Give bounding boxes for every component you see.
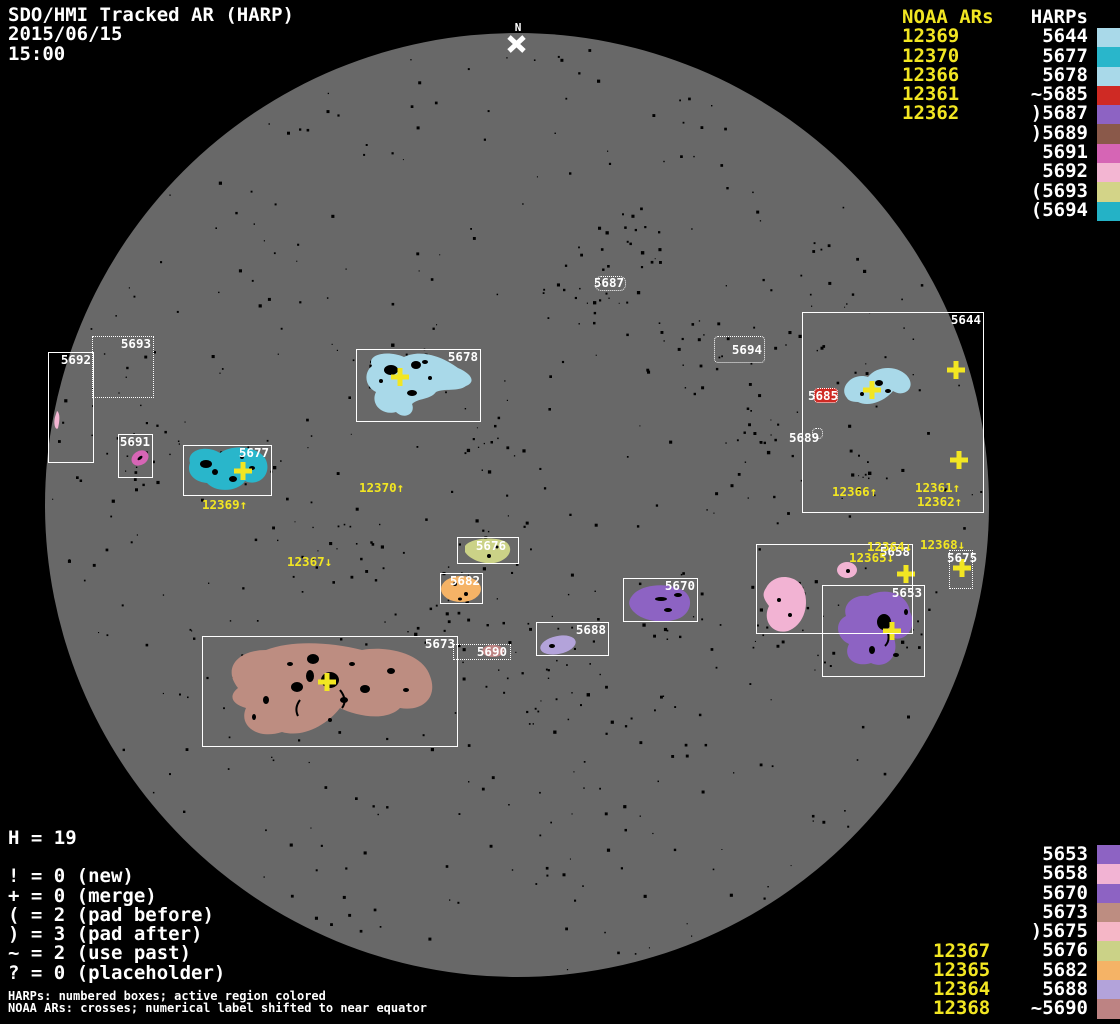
harp-box-label: 5676 [476,540,506,552]
harp-box-5688: 5688 [536,622,609,656]
harp-box-5693: 5693 [92,336,154,398]
legend-harp-item: 5677 [1000,47,1088,66]
harp-box-label: 5644 [951,314,981,326]
harp-box-label-5689: 5689 [789,432,819,444]
legend-harp-item: 5644 [1000,27,1088,46]
color-swatch [1097,999,1120,1018]
harp-box-5676: 5676 [457,537,519,564]
legend-harp-item: )5687 [1000,104,1088,123]
stat-line: ~ = 2 (use past) [8,944,225,963]
stats-block: H = 19 ! = 0 (new) + = 0 (merge) ( = 2 (… [8,829,225,983]
noaa-label-12368: 12368↓ [920,539,965,551]
color-swatch [1097,202,1120,221]
color-swatch [1097,922,1120,941]
harp-box-label: 5678 [448,351,478,363]
legend-harp-item: 5676 [1000,941,1088,960]
harp-box-label: 5673 [425,638,455,650]
color-swatch [1097,941,1120,960]
harp-tracking-frame: { "header": {"title": "SDO/HMI Tracked A… [0,0,1120,1024]
legend-noaa-item: 12370 [902,47,994,66]
harp-box-label: 5691 [120,436,150,448]
harp-box-5677: 5677 [183,445,272,496]
stat-line: ! = 0 (new) [8,867,225,886]
footer-line: NOAA ARs: crosses; numerical label shift… [8,1003,427,1015]
color-swatch [1097,903,1120,922]
frame-time: 15:00 [8,45,294,64]
stat-line: ? = 0 (placeholder) [8,964,225,983]
harp-box-5694: 5694 [714,336,765,363]
color-swatch [1097,124,1120,143]
harp-box-label: 5694 [732,344,762,356]
color-swatch [1097,961,1120,980]
footer-notes: HARPs: numbered boxes; active region col… [8,991,427,1014]
legend-noaa-item: 12362 [902,104,994,123]
legend-harp-item: 5670 [1000,884,1088,903]
legend-harp-item: 5658 [1000,864,1088,883]
legend-noaa-item: 12367 [933,942,990,961]
color-swatch [1097,67,1120,86]
legend-harp-item: (5694 [1000,201,1088,220]
harp-box-5687: 5687 [595,276,626,291]
noaa-label-12365: 12365↓ [849,552,894,564]
color-swatch [1097,86,1120,105]
harp-box-label: 5688 [576,624,606,636]
harp-box-label: 5675 [947,552,977,564]
noaa-label-12362: 12362↑ [917,496,962,508]
harp-box-5675: 5675 [949,550,973,589]
legend-noaa-item: 12369 [902,27,994,46]
noaa-label-12369: 12369↑ [202,499,247,511]
color-swatch [1097,845,1120,864]
frame-date: 2015/06/15 [8,25,294,44]
harp-box-label: 5687 [594,277,624,289]
legend-harps-top: HARPs 5644 5677 5678 ~5685 )5687 )5689 5… [1000,8,1088,220]
legend-harps-bottom: 5653 5658 5670 5673 )5675 5676 5682 5688… [1000,845,1088,1019]
color-swatch [1097,105,1120,124]
harp-box-label: 5690 [477,646,507,658]
title-block: SDO/HMI Tracked AR (HARP) 2015/06/15 15:… [8,6,294,64]
noaa-label-12370: 12370↑ [359,482,404,494]
harp-box-label: 5653 [892,587,922,599]
color-swatch [1097,182,1120,201]
color-swatch [1097,163,1120,182]
harp-box-label: 5677 [239,447,269,459]
legend-swatches-bottom [1097,845,1120,1019]
color-swatch [1097,144,1120,163]
harp-box-label: 5682 [450,575,480,587]
stat-line: + = 0 (merge) [8,887,225,906]
harp-box-label: 5693 [121,338,151,350]
legend-swatches-top [1097,28,1120,221]
color-swatch [1097,47,1120,66]
harp-box-5685: 5685 [814,388,838,403]
noaa-label-12367: 12367↓ [287,556,332,568]
harp-count: H = 19 [8,829,225,848]
harp-box-label: 5692 [61,354,91,366]
harp-box-5670: 5670 [623,578,698,622]
legend-harp-item: 5692 [1000,162,1088,181]
harp-box-label: 5670 [665,580,695,592]
color-swatch [1097,980,1120,999]
legend-noaa-item: 12368 [933,999,990,1018]
harp-box-5653: 5653 [822,585,925,677]
color-swatch [1097,884,1120,903]
harp-box-5673: 5673 [202,636,458,747]
harp-box-5692: 5692 [48,352,94,463]
harp-box-5682: 5682 [440,573,483,604]
legend-harp-item: ~5690 [1000,999,1088,1018]
harp-box-5690: 5690 [453,644,511,660]
color-swatch [1097,864,1120,883]
harp-box-5678: 5678 [356,349,481,422]
color-swatch [1097,28,1120,47]
harp-box-5691: 5691 [118,434,153,478]
noaa-label-12366: 12366↑ [832,486,877,498]
noaa-label-12361: 12361↑ [915,482,960,494]
north-marker-label: N [506,22,530,33]
legend-noaa-bottom: 12367 12365 12364 12368 [933,942,990,1019]
north-marker-x-icon [509,37,524,51]
legend-noaa-top: NOAA ARs 12369 12370 12366 12361 12362 [902,8,994,124]
harp-box-label: 5685 [808,390,838,402]
